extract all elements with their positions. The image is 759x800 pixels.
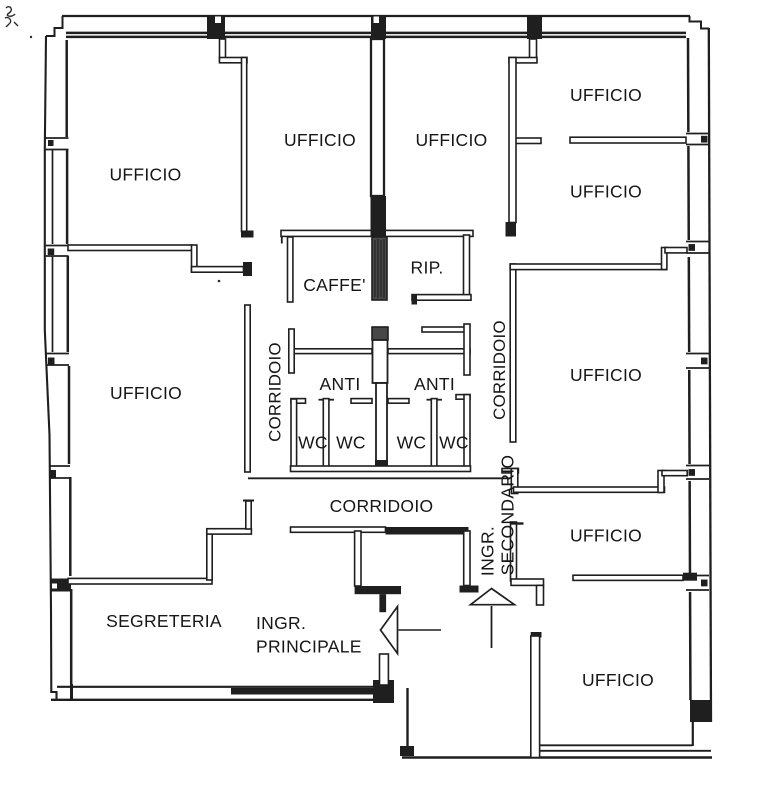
svg-text:ANTI: ANTI: [319, 374, 360, 394]
svg-text:CORRIDOIO: CORRIDOIO: [490, 320, 509, 420]
svg-text:SECONDARIO: SECONDARIO: [498, 455, 518, 576]
svg-text:INGR.: INGR.: [256, 613, 306, 633]
svg-text:INGR.: INGR.: [478, 526, 498, 576]
svg-text:CORRIDOIO: CORRIDOIO: [265, 342, 284, 442]
svg-text:WC: WC: [439, 433, 469, 453]
svg-text:WC: WC: [397, 433, 427, 453]
svg-text:WC: WC: [298, 433, 328, 453]
svg-text:SEGRETERIA: SEGRETERIA: [106, 611, 222, 631]
svg-text:WC: WC: [336, 433, 366, 453]
svg-text:UFFICIO: UFFICIO: [570, 526, 642, 546]
svg-text:UFFICIO: UFFICIO: [415, 130, 487, 150]
svg-text:ANTI: ANTI: [414, 374, 455, 394]
svg-text:UFFICIO: UFFICIO: [109, 165, 181, 185]
svg-text:CAFFE': CAFFE': [303, 275, 366, 295]
svg-text:PRINCIPALE: PRINCIPALE: [256, 637, 362, 657]
svg-text:UFFICIO: UFFICIO: [110, 383, 182, 403]
svg-text:UFFICIO: UFFICIO: [570, 85, 642, 105]
svg-text:CORRIDOIO: CORRIDOIO: [330, 496, 434, 516]
svg-text:RIP.: RIP.: [411, 258, 444, 278]
svg-text:UFFICIO: UFFICIO: [284, 130, 356, 150]
svg-text:UFFICIO: UFFICIO: [570, 182, 642, 202]
svg-text:UFFICIO: UFFICIO: [570, 365, 642, 385]
svg-text:UFFICIO: UFFICIO: [582, 670, 654, 690]
